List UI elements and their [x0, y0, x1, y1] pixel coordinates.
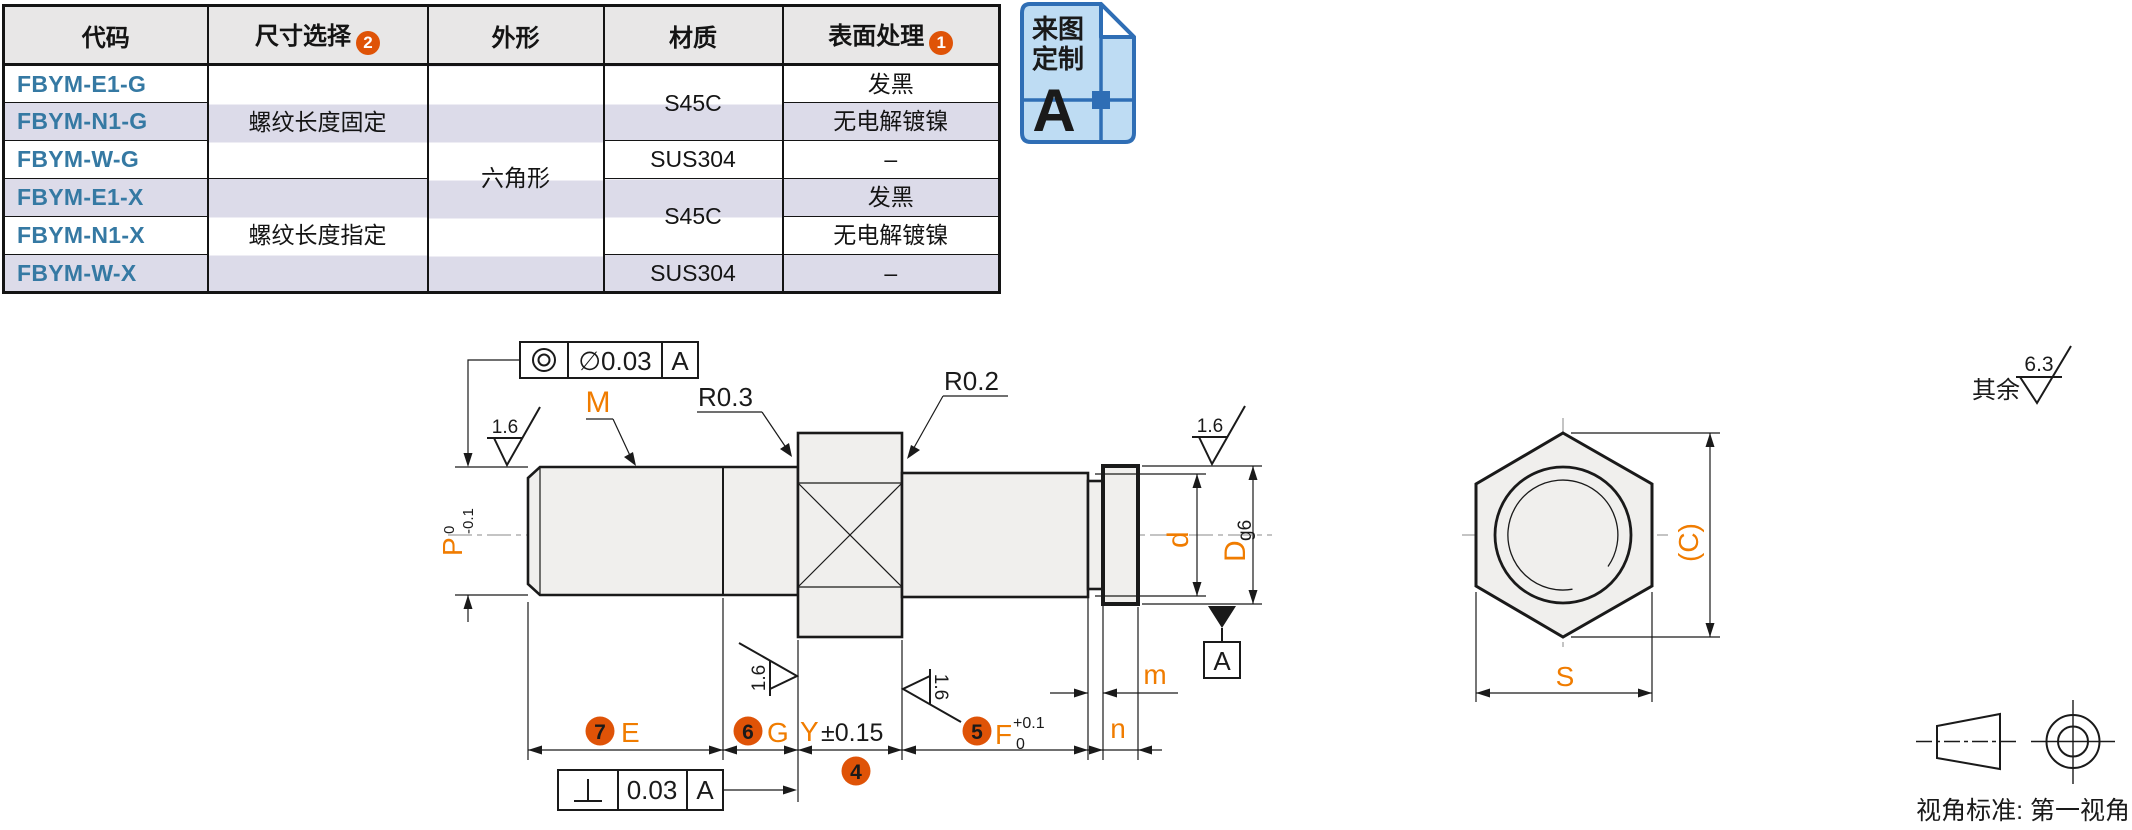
- badge-letter: A: [1032, 77, 1075, 144]
- dim-label-C: (C): [1673, 523, 1704, 562]
- dim-label-d: d: [1162, 531, 1195, 548]
- note-badge-7-number: 7: [594, 721, 606, 744]
- surface-finish-mark: 1.6: [1192, 406, 1245, 464]
- thread-body: [528, 467, 798, 595]
- badge-text-line1: 来图: [1032, 14, 1084, 44]
- concentricity-icon: [533, 349, 555, 371]
- surface-finish-value: 1.6: [749, 665, 770, 691]
- general-surface-note: 其余 6.3: [1972, 346, 2071, 404]
- surface-finish-mark: 1.6: [487, 407, 540, 465]
- fcf-datum: A: [671, 346, 689, 376]
- datum-A-flag: A: [1204, 606, 1240, 678]
- concentricity-icon-inner: [539, 355, 550, 366]
- dim-label-n: n: [1110, 713, 1126, 744]
- dim-label-R02: R0.2: [944, 366, 999, 396]
- note-badge-5-number: 5: [971, 721, 983, 744]
- label-R02: R0.2: [907, 366, 1008, 459]
- dim-Y: Y ±0.15 4: [800, 716, 883, 786]
- surface-finish-value: 1.6: [930, 674, 951, 700]
- surface-finish-mark: 1.6: [903, 669, 961, 722]
- dim-label-M: M: [586, 386, 611, 419]
- fcf-value: ∅0.03: [578, 346, 651, 376]
- datum-letter: A: [1213, 646, 1231, 676]
- note-badge-6-number: 6: [742, 721, 754, 744]
- perpendicularity-fcf: 0.03 A: [558, 770, 797, 810]
- badge-text-line2: 定制: [1032, 44, 1084, 74]
- dim-P: P 0 -0.1: [437, 453, 528, 622]
- surface-note-value: 6.3: [2024, 353, 2053, 376]
- technical-drawing: 来图 定制 A: [0, 0, 2132, 830]
- dim-label-F: F: [995, 719, 1012, 750]
- dim-label-P: P: [437, 537, 468, 556]
- hexagon-outline: [1476, 433, 1652, 637]
- dim-label-E: E: [621, 717, 640, 748]
- surface-note-prefix: 其余: [1972, 377, 2020, 404]
- label-R03: R0.3: [697, 382, 792, 457]
- dim-label-P-tol-bottom: -0.1: [460, 508, 477, 534]
- dim-label-S: S: [1556, 661, 1575, 692]
- dim-label-Y-tol: ±0.15: [821, 719, 883, 747]
- custom-order-badge-icon[interactable]: 来图 定制 A: [1022, 4, 1134, 144]
- main-side-view: ∅0.03 A P 0 -0.1 1.6: [437, 342, 1272, 810]
- surface-finish-mark: 1.6: [739, 643, 797, 696]
- dim-label-D: D: [1219, 540, 1252, 562]
- shank: [902, 473, 1088, 597]
- dim-label-R03: R0.3: [698, 382, 753, 412]
- dim-m: m: [1050, 659, 1178, 698]
- projection-symbol: 视角标准: 第一视角: [1916, 700, 2130, 825]
- dim-label-m: m: [1143, 659, 1166, 690]
- dim-label-Y: Y: [800, 716, 819, 747]
- dim-label-P-tol-top: 0: [441, 526, 458, 534]
- dim-label-F-tol-bottom: 0: [1016, 736, 1025, 753]
- fcf-value: 0.03: [627, 775, 678, 805]
- dim-label-F-tol-top: +0.1: [1013, 715, 1045, 732]
- dim-G: 6 G: [734, 717, 789, 749]
- dim-F: 5 F +0.1 0: [963, 715, 1045, 753]
- badge-folded-corner-icon: [1101, 4, 1134, 37]
- note-badge-4-number: 4: [850, 761, 862, 784]
- dim-label-D-fit: g6: [1235, 520, 1256, 541]
- dim-label-G: G: [767, 717, 789, 748]
- surface-finish-value: 1.6: [1197, 416, 1223, 437]
- fcf-datum: A: [696, 775, 714, 805]
- groove: [1088, 481, 1103, 589]
- surface-finish-value: 1.6: [492, 417, 518, 438]
- label-M: M: [586, 386, 637, 466]
- projection-caption: 视角标准: 第一视角: [1916, 797, 2130, 825]
- badge-square-marker: [1092, 91, 1110, 109]
- collar: [1103, 466, 1138, 604]
- catalog-page: 代码 尺寸选择2 外形 材质 表面处理1 FBYM-E1-G 螺纹长度固定 六角…: [0, 0, 2132, 830]
- hex-end-view: (C) S: [1462, 418, 1720, 702]
- dim-E: 7 E: [586, 717, 640, 749]
